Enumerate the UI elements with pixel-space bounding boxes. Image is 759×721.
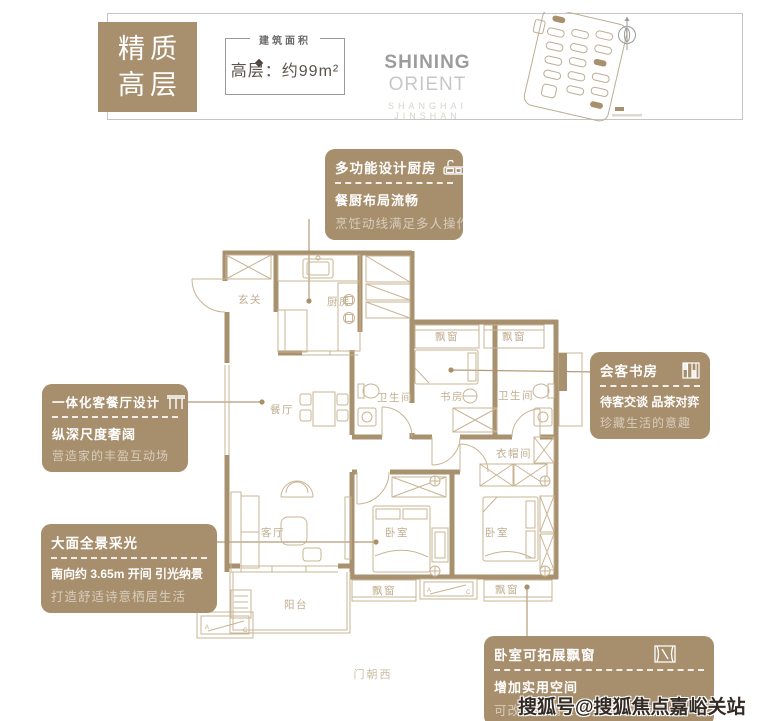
bay-label-3: 飘窗 xyxy=(372,584,396,597)
brand-tagline: SHANGHAI JINSHAN xyxy=(360,101,495,121)
callout-daylight-line1: 南向约 3.65m 开间 引光纳景 xyxy=(51,565,207,582)
compass-icon xyxy=(619,17,636,51)
curtain-window-icon xyxy=(654,645,676,663)
room-label-living: 客厅 xyxy=(261,526,285,539)
callout-divider xyxy=(494,669,704,671)
callout-baywindow-title: 卧室可拓展飘窗 xyxy=(494,644,596,664)
plan-badge: 精质 高层 xyxy=(98,22,197,112)
plan-badge-line1: 精质 xyxy=(113,31,182,67)
callout-living-line2: 营造家的丰盈互动场 xyxy=(52,447,178,464)
bookshelf-icon xyxy=(682,362,700,379)
room-label-bath2: 卫生间 xyxy=(498,389,534,402)
room-label-dining: 餐厅 xyxy=(270,403,294,416)
room-label-bed1: 卧室 xyxy=(385,526,409,539)
brand-name-light: ORIENT xyxy=(389,74,467,95)
connector-dots xyxy=(259,298,529,589)
brand-logo: SHINING ORIENT SHANGHAI JINSHAN xyxy=(360,52,495,121)
callout-kitchen-line2: 烹饪动线满足多人操作 xyxy=(335,213,453,232)
bay-label-2: 飘窗 xyxy=(502,330,526,343)
callout-kitchen: 多功能设计厨房 餐厨布局流畅 烹饪动线满足多人操作 xyxy=(325,149,463,240)
room-label-entry: 玄关 xyxy=(238,293,262,306)
plan-badge-line2: 高层 xyxy=(113,67,182,103)
siteplan-legend xyxy=(612,107,642,117)
callout-divider xyxy=(600,385,700,387)
siteplan-map xyxy=(512,12,652,122)
room-label-cloak: 衣帽间 xyxy=(496,447,532,460)
room-label-balcony: 阳台 xyxy=(284,598,308,611)
callout-living-line1: 纵深尺度奢阔 xyxy=(52,424,178,443)
callout-daylight: 大面全景采光 南向约 3.65m 开间 引光纳景 打造舒适诗意栖居生活 xyxy=(41,524,217,613)
callout-daylight-title: 大面全景采光 xyxy=(51,532,138,552)
callout-kitchen-line1: 餐厨布局流畅 xyxy=(335,190,453,209)
ac-label-a2: A xyxy=(205,625,209,631)
area-box: 建筑面积 高层：约99m² xyxy=(225,38,345,95)
brand-name-bold: SHINING xyxy=(384,52,470,73)
kitchen-sink-icon xyxy=(443,159,465,176)
callout-study-line2: 珍藏生活的意趣 xyxy=(600,414,700,431)
room-label-study: 书房 xyxy=(440,390,464,403)
area-label: 建筑面积 xyxy=(250,32,320,47)
brand-name: SHINING ORIENT xyxy=(360,52,495,96)
floorplan: A C A C xyxy=(130,210,600,690)
callout-kitchen-title: 多功能设计厨房 xyxy=(335,157,437,177)
callout-study: 会客书房 待客交谈 品茶对弈 珍藏生活的意趣 xyxy=(590,352,710,439)
callout-daylight-line2: 打造舒适诗意栖居生活 xyxy=(51,586,207,605)
callout-divider xyxy=(335,182,453,184)
callout-study-line1: 待客交谈 品茶对弈 xyxy=(600,393,700,410)
room-label-bed2: 卧室 xyxy=(485,526,509,539)
callout-living-title: 一体化客餐厅设计 xyxy=(52,392,160,411)
callout-living-dining: 一体化客餐厅设计 纵深尺度奢阔 营造家的丰盈互动场 xyxy=(42,384,188,472)
ac-label-a: A xyxy=(427,588,431,594)
room-label-bath1: 卫生间 xyxy=(377,391,413,404)
siteplan-boundary xyxy=(523,12,629,122)
ac-label-c2: C xyxy=(243,628,248,634)
room-label-kitchen: 厨房 xyxy=(327,295,351,308)
area-value: 高层：约99m² xyxy=(226,56,344,80)
bay-label-1: 飘窗 xyxy=(435,330,459,343)
table-icon xyxy=(166,394,186,410)
callout-study-title: 会客书房 xyxy=(600,360,658,380)
page: 精质 高层 建筑面积 高层：约99m² SHINING ORIENT SHANG… xyxy=(0,0,759,721)
bay-label-4: 飘窗 xyxy=(495,583,519,596)
watermark: 搜狐号@搜狐焦点嘉峪关站 xyxy=(518,692,759,719)
bay-wall-fill xyxy=(559,353,567,391)
door-orientation-note: 门朝西 xyxy=(354,667,393,681)
callout-divider xyxy=(51,557,207,559)
callout-divider xyxy=(52,416,178,418)
ac-label-c: C xyxy=(466,590,471,596)
